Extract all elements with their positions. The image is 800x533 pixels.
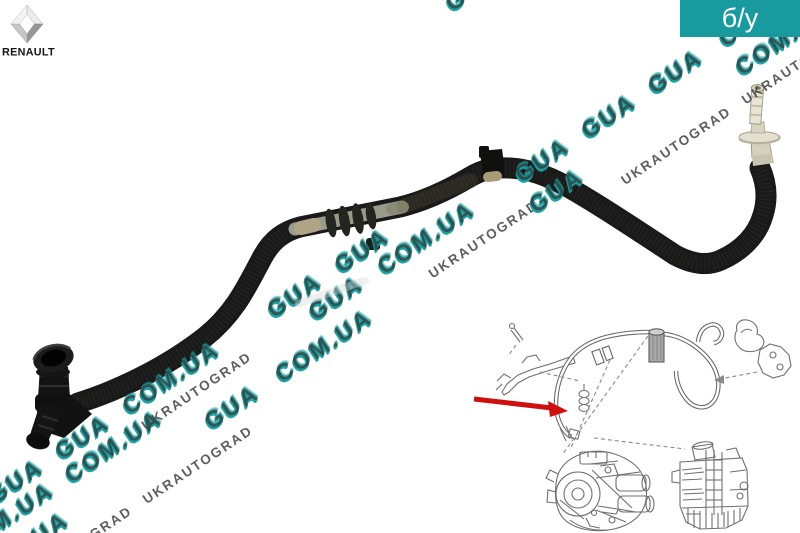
svg-text:RENAULT: RENAULT [2, 47, 55, 59]
